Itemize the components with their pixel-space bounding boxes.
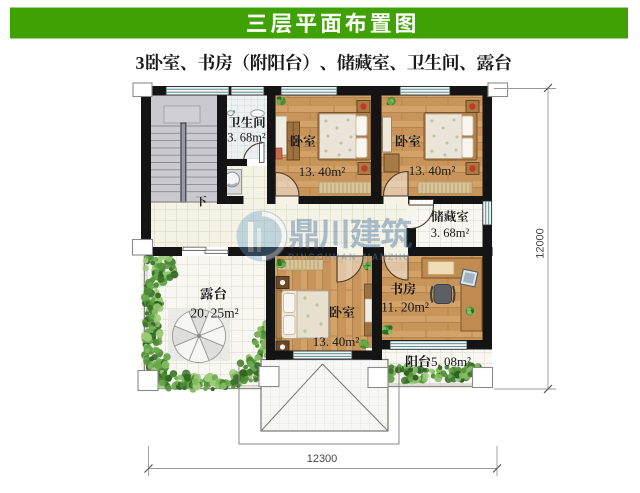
svg-text:11. 20m²: 11. 20m² xyxy=(381,300,429,315)
svg-text:13. 40m²: 13. 40m² xyxy=(299,164,346,179)
svg-text:20. 25m²: 20. 25m² xyxy=(190,306,238,321)
svg-text:5. 08m²: 5. 08m² xyxy=(431,354,471,369)
svg-text:DINGCHUAN JIANZHU: DINGCHUAN JIANZHU xyxy=(288,252,411,262)
svg-text:12300: 12300 xyxy=(307,453,338,465)
svg-text:12000: 12000 xyxy=(535,228,547,259)
svg-text:13. 40m²: 13. 40m² xyxy=(409,163,456,178)
svg-text:13. 40m²: 13. 40m² xyxy=(313,334,360,349)
svg-text:3: 3 xyxy=(136,53,145,73)
svg-text:3. 68m²: 3. 68m² xyxy=(431,226,470,240)
